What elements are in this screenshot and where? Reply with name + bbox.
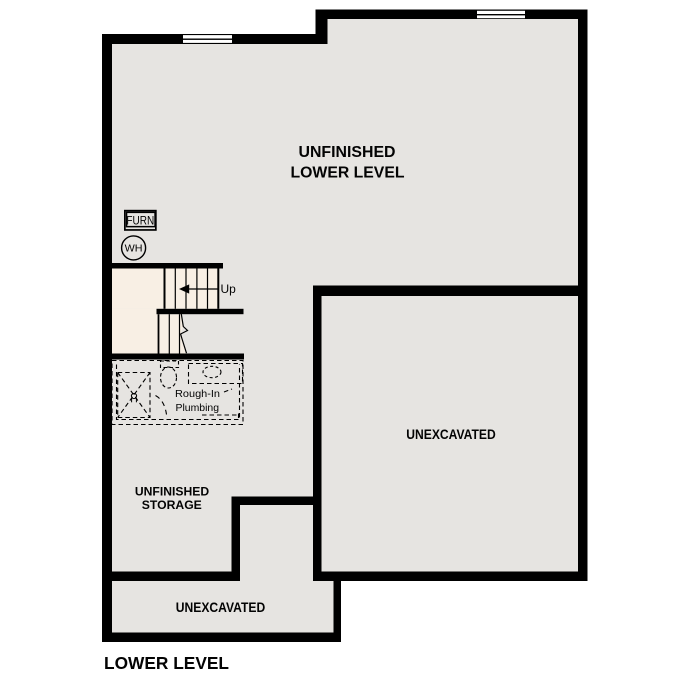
svg-text:STORAGE: STORAGE [142, 498, 202, 512]
svg-text:UNFINISHED: UNFINISHED [299, 144, 396, 161]
svg-text:WH: WH [125, 243, 143, 255]
svg-text:UNFINISHED: UNFINISHED [135, 484, 210, 498]
svg-text:UNEXCAVATED: UNEXCAVATED [406, 426, 496, 442]
svg-text:LOWER LEVEL: LOWER LEVEL [291, 165, 405, 182]
svg-text:Up: Up [221, 282, 237, 296]
svg-text:Rough-In: Rough-In [175, 388, 220, 400]
svg-text:UNEXCAVATED: UNEXCAVATED [176, 599, 266, 615]
svg-text:LOWER LEVEL: LOWER LEVEL [104, 653, 229, 673]
svg-text:FURN: FURN [126, 213, 154, 227]
svg-text:Plumbing: Plumbing [176, 402, 220, 414]
